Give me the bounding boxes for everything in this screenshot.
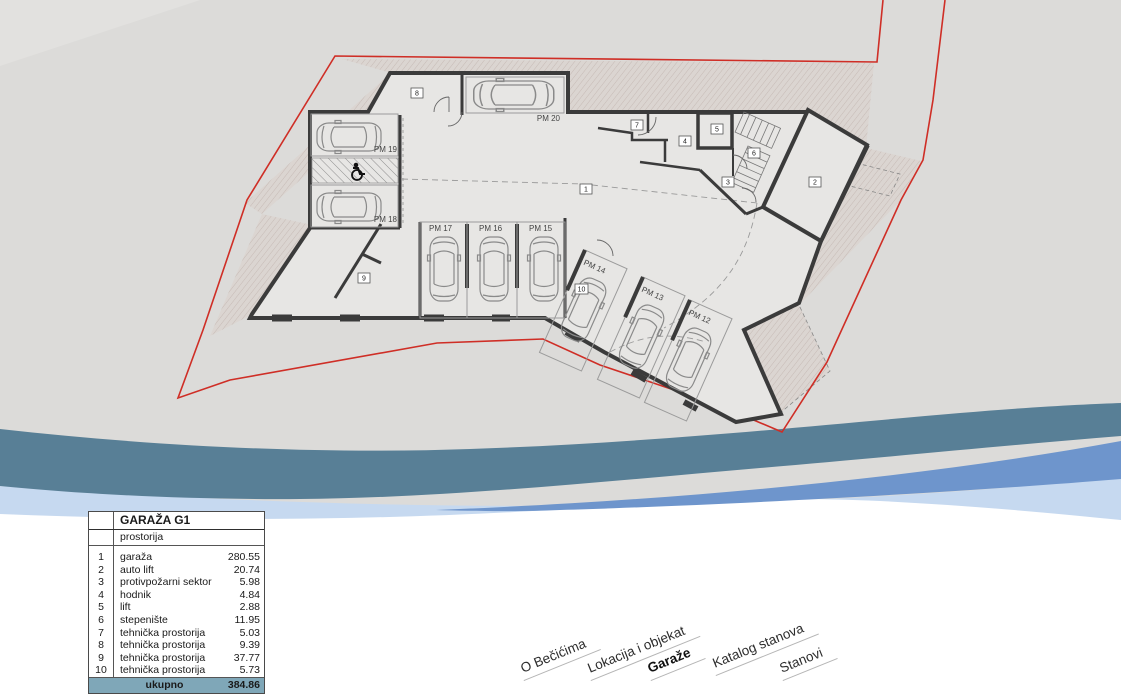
- table-row: 4hodnik4.84: [89, 589, 264, 602]
- svg-text:2: 2: [813, 180, 817, 187]
- room-tag-4: 4: [679, 136, 691, 146]
- table-row: 10tehnička prostorija5.73: [89, 664, 264, 677]
- table-row: 9tehnička prostorija37.77: [89, 652, 264, 665]
- table-row: 2auto lift20.74: [89, 564, 264, 577]
- svg-text:4: 4: [683, 139, 687, 146]
- svg-text:9: 9: [362, 276, 366, 283]
- room-tag-3: 3: [722, 177, 734, 187]
- total-value: 384.86: [216, 678, 264, 694]
- table-row: 7tehnička prostorija5.03: [89, 627, 264, 640]
- pm18-label: PM 18: [374, 215, 398, 224]
- table-title-row: GARAŽA G1: [89, 512, 264, 530]
- room-tag-5: 5: [711, 124, 723, 134]
- table-row: 5lift2.88: [89, 601, 264, 614]
- room-tag-8: 8: [411, 88, 423, 98]
- table-body: 1garaža280.552auto lift20.743protivpožar…: [89, 551, 264, 677]
- svg-text:8: 8: [415, 91, 419, 98]
- svg-text:1: 1: [584, 187, 588, 194]
- pm16-label: PM 16: [479, 224, 503, 233]
- room-tag-1: 1: [580, 184, 592, 194]
- table-row: 8tehnička prostorija9.39: [89, 639, 264, 652]
- pm19-label: PM 19: [374, 145, 398, 154]
- table-row: 1garaža280.55: [89, 551, 264, 564]
- room-tag-10: 10: [575, 284, 588, 294]
- garage-area-table: GARAŽA G1 prostorija 1garaža280.552auto …: [88, 511, 265, 694]
- table-subtitle: prostorija: [114, 530, 163, 545]
- accessible-strip: [312, 158, 398, 183]
- total-label: ukupno: [113, 678, 216, 694]
- pm20-label: PM 20: [537, 114, 561, 123]
- svg-text:7: 7: [635, 123, 639, 130]
- table-row: 3protivpožarni sektor5.98: [89, 576, 264, 589]
- table-title: GARAŽA G1: [114, 512, 190, 529]
- table-subtitle-row: prostorija: [89, 530, 264, 546]
- room-tag-2: 2: [809, 177, 821, 187]
- table-row: 6stepenište11.95: [89, 614, 264, 627]
- svg-text:10: 10: [578, 287, 586, 294]
- pm15-label: PM 15: [529, 224, 553, 233]
- room-tag-7: 7: [631, 120, 643, 130]
- room-tag-9: 9: [358, 273, 370, 283]
- svg-text:5: 5: [715, 127, 719, 134]
- svg-text:6: 6: [752, 151, 756, 158]
- pm17-label: PM 17: [429, 224, 453, 233]
- svg-text:3: 3: [726, 180, 730, 187]
- room-tag-6: 6: [748, 148, 760, 158]
